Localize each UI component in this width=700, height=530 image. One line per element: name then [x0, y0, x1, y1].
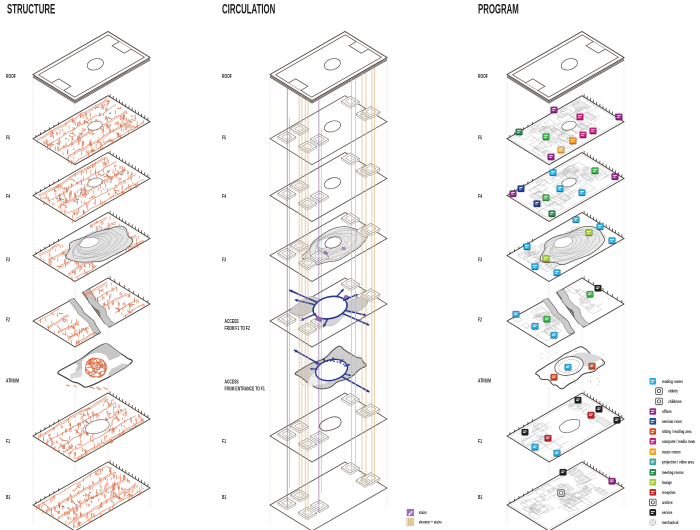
svg-text:ACCESS: ACCESS — [225, 318, 239, 324]
svg-text:F2: F2 — [6, 317, 10, 323]
svg-text:ATRIUM: ATRIUM — [6, 378, 19, 384]
svg-text:ATRIUM: ATRIUM — [478, 378, 491, 384]
svg-text:offices: offices — [662, 410, 672, 415]
svg-text:F5: F5 — [6, 135, 10, 141]
svg-text:PROGRAM: PROGRAM — [478, 2, 519, 17]
svg-text:ROOF: ROOF — [6, 73, 16, 79]
svg-text:reading rooms: reading rooms — [662, 379, 683, 384]
svg-text:projection / video area: projection / video area — [662, 460, 695, 465]
svg-text:F1: F1 — [6, 438, 10, 444]
svg-text:B1: B1 — [478, 494, 483, 500]
svg-text:FROM ENTRANCE TO F1: FROM ENTRANCE TO F1 — [225, 386, 266, 392]
svg-text:F1: F1 — [478, 438, 482, 444]
svg-text:ROOF: ROOF — [222, 73, 232, 79]
svg-text:sitting / reading area: sitting / reading area — [662, 430, 692, 435]
svg-text:meeting rooms: meeting rooms — [662, 470, 684, 475]
svg-text:lounge: lounge — [662, 480, 672, 485]
svg-text:reception: reception — [662, 490, 676, 495]
svg-text:mechanical: mechanical — [662, 521, 678, 526]
svg-text:F3: F3 — [222, 257, 226, 263]
svg-text:stairs: stairs — [419, 511, 427, 516]
svg-text:F5: F5 — [478, 135, 482, 141]
svg-text:elderly: elderly — [668, 389, 678, 394]
svg-text:childrens: childrens — [668, 400, 681, 405]
svg-text:F2: F2 — [478, 317, 482, 323]
svg-text:seminar room: seminar room — [662, 419, 682, 424]
svg-text:CIRCULATION: CIRCULATION — [222, 2, 275, 17]
svg-text:ACCESS: ACCESS — [225, 379, 239, 385]
svg-text:service: service — [662, 511, 672, 516]
svg-text:B1: B1 — [6, 494, 11, 500]
svg-text:music rooms: music rooms — [662, 450, 681, 455]
svg-text:F3: F3 — [478, 257, 482, 263]
svg-text:FROM F1 TO F2: FROM F1 TO F2 — [225, 325, 251, 331]
svg-text:B1: B1 — [222, 494, 227, 500]
svg-text:F4: F4 — [478, 193, 482, 199]
svg-text:computer / media room: computer / media room — [662, 439, 696, 444]
svg-text:archive: archive — [662, 501, 673, 506]
svg-text:STRUCTURE: STRUCTURE — [7, 2, 55, 17]
svg-text:F4: F4 — [6, 193, 10, 199]
svg-text:F4: F4 — [222, 193, 226, 199]
svg-text:F3: F3 — [6, 257, 10, 263]
svg-text:F5: F5 — [222, 135, 226, 141]
svg-text:ROOF: ROOF — [478, 73, 488, 79]
svg-text:elevator + stairs: elevator + stairs — [419, 520, 442, 525]
svg-text:F1: F1 — [222, 438, 226, 444]
